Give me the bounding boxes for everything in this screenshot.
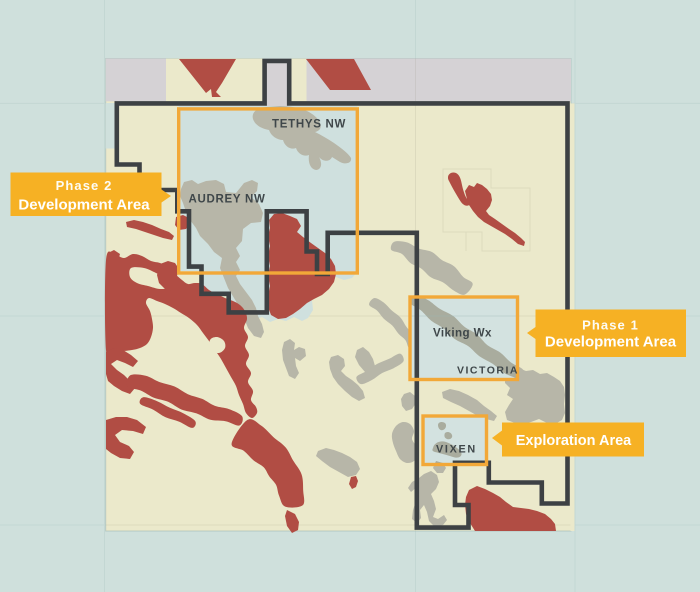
svg-text:AUDREY NW: AUDREY NW	[189, 194, 266, 206]
svg-text:Development Area: Development Area	[545, 334, 677, 351]
svg-text:TETHYS NW: TETHYS NW	[272, 119, 346, 131]
svg-text:Phase 2: Phase 2	[56, 178, 113, 193]
svg-text:VIXEN: VIXEN	[436, 444, 477, 456]
svg-text:Exploration Area: Exploration Area	[516, 433, 632, 449]
svg-text:Phase 1: Phase 1	[582, 318, 639, 333]
svg-text:Development Area: Development Area	[18, 197, 150, 214]
svg-text:Viking Wx: Viking Wx	[433, 327, 492, 340]
svg-text:VICTORIA: VICTORIA	[457, 365, 519, 377]
